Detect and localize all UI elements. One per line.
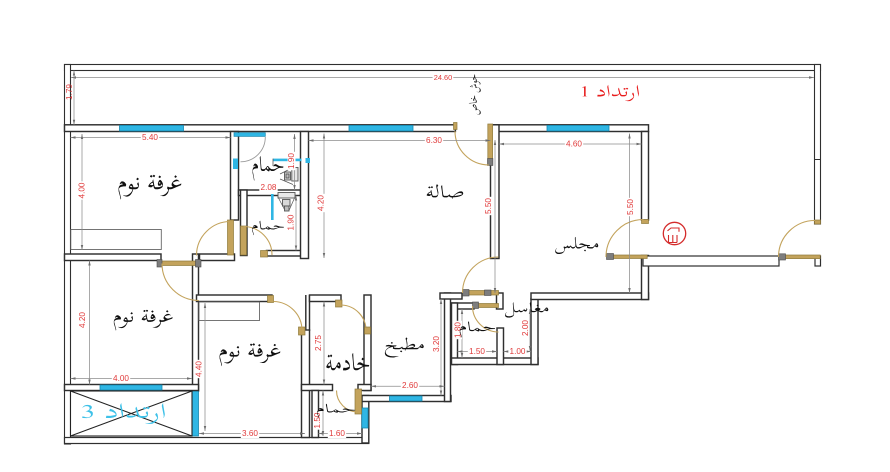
svg-text:4.40: 4.40 (194, 361, 203, 377)
svg-text:2.00: 2.00 (521, 320, 530, 336)
svg-text:1.60: 1.60 (329, 429, 345, 438)
svg-text:6.30: 6.30 (426, 136, 442, 145)
svg-text:4.20: 4.20 (317, 195, 326, 211)
svg-text:4.60: 4.60 (566, 140, 582, 149)
svg-text:4.00: 4.00 (78, 182, 87, 198)
svg-text:5.50: 5.50 (626, 199, 635, 215)
svg-text:2.60: 2.60 (402, 381, 418, 390)
svg-text:5.40: 5.40 (142, 133, 158, 142)
svg-text:1.90: 1.90 (287, 214, 296, 230)
svg-text:1.90: 1.90 (287, 153, 296, 169)
svg-text:4.00: 4.00 (113, 374, 129, 383)
svg-text:2.75: 2.75 (314, 335, 323, 351)
svg-text:4.20: 4.20 (78, 312, 87, 328)
svg-text:24.60: 24.60 (434, 73, 453, 82)
svg-text:2.08: 2.08 (261, 183, 277, 192)
svg-text:1.79: 1.79 (65, 84, 74, 100)
svg-text:3.20: 3.20 (432, 336, 441, 352)
svg-text:5.50: 5.50 (484, 198, 493, 214)
svg-text:3.60: 3.60 (242, 429, 258, 438)
svg-text:1.50: 1.50 (469, 347, 485, 356)
svg-text:1.00: 1.00 (510, 347, 526, 356)
